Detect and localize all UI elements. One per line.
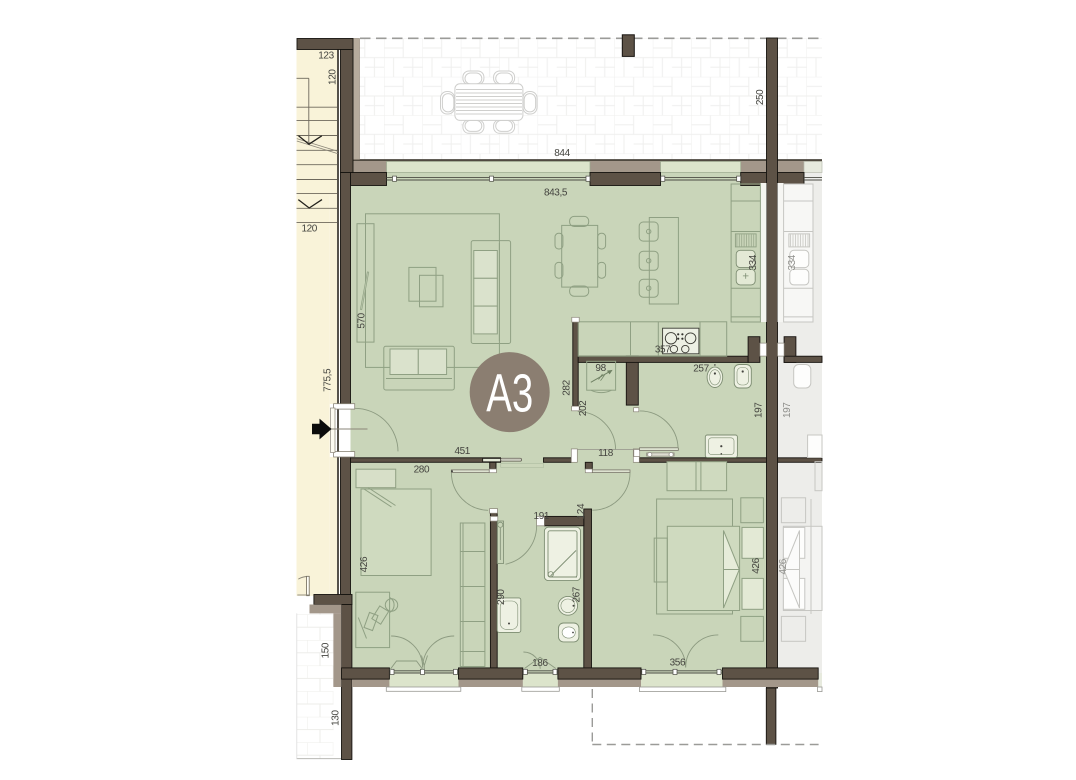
svg-text:120: 120	[327, 69, 338, 85]
svg-text:191: 191	[534, 511, 550, 522]
svg-text:844: 844	[554, 148, 570, 159]
svg-text:120: 120	[301, 224, 317, 235]
svg-text:843,5: 843,5	[544, 187, 568, 198]
svg-text:130: 130	[331, 710, 342, 726]
svg-text:775,5: 775,5	[323, 368, 334, 392]
svg-text:290: 290	[496, 589, 507, 605]
svg-text:426: 426	[359, 556, 370, 572]
svg-text:186: 186	[532, 658, 548, 669]
svg-text:123: 123	[318, 50, 334, 61]
svg-text:426: 426	[751, 557, 762, 573]
svg-text:A3: A3	[486, 364, 533, 424]
svg-text:202: 202	[578, 400, 589, 416]
svg-text:334: 334	[748, 254, 759, 270]
svg-text:451: 451	[454, 446, 470, 457]
svg-text:124: 124	[576, 503, 587, 519]
svg-text:356: 356	[670, 658, 686, 669]
svg-text:150: 150	[320, 642, 331, 658]
svg-text:570: 570	[357, 312, 368, 328]
svg-text:98: 98	[595, 363, 606, 374]
svg-text:267: 267	[571, 586, 582, 602]
svg-text:357: 357	[655, 345, 671, 356]
svg-text:197: 197	[782, 402, 793, 418]
svg-text:257: 257	[693, 363, 709, 374]
svg-text:334: 334	[787, 254, 798, 270]
svg-text:282: 282	[561, 379, 572, 395]
svg-text:426: 426	[778, 558, 789, 574]
svg-text:118: 118	[598, 448, 614, 459]
svg-text:250: 250	[755, 89, 766, 105]
svg-text:280: 280	[414, 465, 430, 476]
svg-text:197: 197	[754, 402, 765, 418]
